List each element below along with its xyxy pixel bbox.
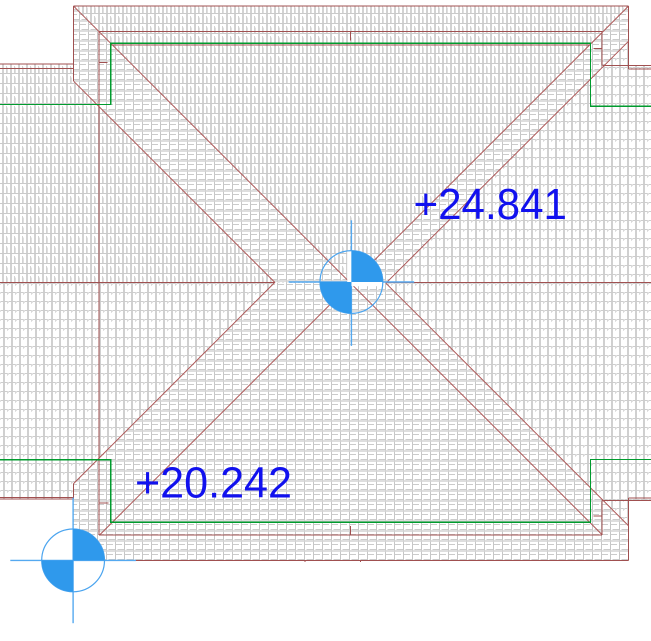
svg-text:+20.242: +20.242: [135, 458, 292, 507]
svg-text:+24.841: +24.841: [414, 180, 568, 229]
